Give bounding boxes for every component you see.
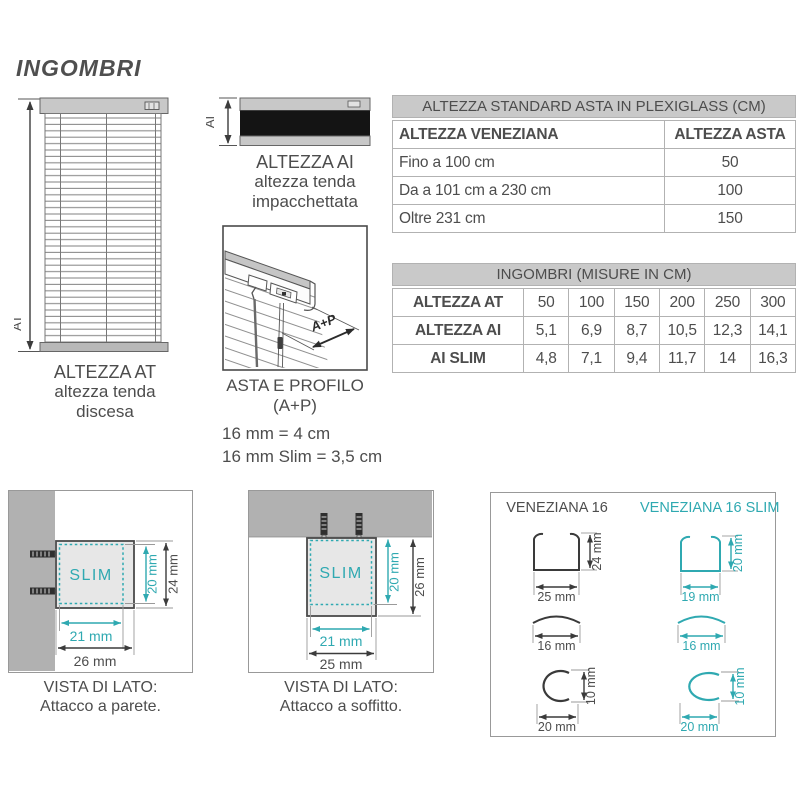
caption-line: altezza tenda [224, 172, 386, 192]
wall-mount-caption: VISTA DI LATO: Attacco a parete. [8, 678, 193, 716]
dim-channel-width: 25 mm [537, 590, 575, 604]
table-row: ALTEZZA AT 50 100 150 200 250 300 [393, 289, 796, 317]
dim-rail-height: 10 mm [733, 667, 747, 705]
ceiling-mount-panel: SLIM 20 mm 26 mm 21 mm 25 mm [248, 490, 434, 673]
caption-sub: (A+P) [222, 396, 368, 416]
dim-channel-height: 24 mm [590, 532, 604, 570]
dim-outer-width: 25 mm [320, 656, 363, 671]
at-axis-label: AT [14, 315, 24, 331]
row-value: 50 [665, 149, 796, 177]
row-label: ALTEZZA AT [393, 289, 524, 317]
dim-inner-height: 20 mm [145, 554, 160, 594]
headrail-lock [348, 101, 360, 107]
table-row: AI SLIM 4,8 7,1 9,4 11,7 14 16,3 [393, 345, 796, 373]
row-label: Oltre 231 cm [393, 205, 665, 233]
dim-outer-height: 24 mm [166, 554, 181, 594]
dim-inner-width: 21 mm [70, 628, 113, 644]
cord-connector [278, 337, 283, 349]
caption-line: discesa [30, 402, 180, 422]
row-label: Da a 101 cm a 230 cm [393, 177, 665, 205]
profiles-panel: VENEZIANA 16 VENEZIANA 16 SLIM 24 mm 25 … [490, 492, 776, 737]
profile-bottomrail-slim [689, 673, 719, 700]
spec-sheet: INGOMBRI AT ALTEZZA AT altezza tenda dis… [0, 0, 800, 800]
table-row: ALTEZZA AI 5,1 6,9 8,7 10,5 12,3 14,1 [393, 317, 796, 345]
dim-rail-width: 20 mm [680, 720, 718, 734]
dim-slat-width: 16 mm [537, 639, 575, 653]
ceiling [249, 491, 432, 537]
profile-bottomrail [544, 671, 569, 701]
profile-slat-16slim [678, 617, 725, 624]
asta-profilo-caption: ASTA E PROFILO (A+P) [222, 376, 368, 416]
asta-profilo-diagram: A+P [222, 225, 368, 371]
caption-title: ASTA E PROFILO [222, 376, 368, 396]
table-row: Da a 101 cm a 230 cm 100 [393, 177, 796, 205]
dim-rail-height: 10 mm [584, 667, 598, 705]
bottom-rail [40, 343, 168, 352]
caption-line: impacchettata [224, 192, 386, 212]
caption-line: altezza tenda [30, 382, 180, 402]
row-value: 100 [665, 177, 796, 205]
blind-packed-caption: ALTEZZA AI altezza tenda impacchettata [224, 152, 386, 212]
dim-channel-height: 20 mm [731, 534, 745, 572]
note-line: 16 mm = 4 cm [222, 422, 382, 445]
plexiglass-table: ALTEZZA STANDARD ASTA IN PLEXIGLASS (CM)… [392, 95, 796, 233]
col-header: ALTEZZA VENEZIANA [393, 121, 665, 149]
caption-title: ALTEZZA AT [30, 362, 180, 382]
row-label: AI SLIM [393, 345, 524, 373]
slats [45, 114, 161, 343]
dim-channel-width: 19 mm [681, 590, 719, 604]
blind-packed-diagram: AI [206, 93, 372, 149]
plexiglass-table-title: ALTEZZA STANDARD ASTA IN PLEXIGLASS (CM) [392, 95, 796, 118]
bottom-rail [240, 136, 370, 146]
dim-outer-height: 26 mm [412, 557, 427, 597]
page-title: INGOMBRI [16, 55, 142, 82]
wall-mount-panel: SLIM 20 mm 24 mm 21 mm 26 mm [8, 490, 193, 673]
dim-rail-width: 20 mm [538, 720, 576, 734]
row-label: ALTEZZA AI [393, 317, 524, 345]
caption-title: ALTEZZA AI [224, 152, 386, 172]
asta-profilo-notes: 16 mm = 4 cm 16 mm Slim = 3,5 cm [222, 422, 382, 468]
wall [9, 491, 55, 671]
packed-slats [240, 111, 370, 137]
row-label: Fino a 100 cm [393, 149, 665, 177]
profile-slat-16 [533, 617, 580, 624]
slim-label: SLIM [69, 567, 112, 584]
dim-inner-width: 21 mm [320, 633, 363, 649]
headrail-lock [145, 102, 159, 110]
blind-lowered-diagram: AT [14, 93, 176, 359]
veneziana16-title: VENEZIANA 16 [497, 500, 617, 516]
table-row: Fino a 100 cm 50 [393, 149, 796, 177]
profile-channel-16slim [681, 537, 720, 571]
veneziana16slim-title: VENEZIANA 16 SLIM [640, 500, 760, 516]
dim-outer-width: 26 mm [74, 653, 117, 669]
col-header: ALTEZZA ASTA [665, 121, 796, 149]
ceiling-mount-diagram: SLIM 20 mm 26 mm 21 mm 25 mm [249, 491, 432, 671]
blind-lowered-caption: ALTEZZA AT altezza tenda discesa [30, 362, 180, 422]
ingombri-table-title: INGOMBRI (MISURE IN CM) [392, 263, 796, 286]
row-value: 150 [665, 205, 796, 233]
profiles-diagram: 24 mm 25 mm 16 mm 10 mm 20 mm 20 mm [491, 521, 775, 734]
ingombri-table: INGOMBRI (MISURE IN CM) ALTEZZA AT 50 10… [392, 263, 796, 373]
slim-label: SLIM [319, 565, 362, 582]
dim-slat-width: 16 mm [682, 639, 720, 653]
note-line: 16 mm Slim = 3,5 cm [222, 445, 382, 468]
dim-inner-height: 20 mm [387, 552, 402, 592]
ceiling-mount-caption: VISTA DI LATO: Attacco a soffitto. [248, 678, 434, 716]
wall-mount-diagram: SLIM 20 mm 24 mm 21 mm 26 mm [9, 491, 191, 671]
ai-axis-label: AI [206, 116, 217, 128]
table-row: Oltre 231 cm 150 [393, 205, 796, 233]
profile-channel-16 [534, 534, 579, 570]
